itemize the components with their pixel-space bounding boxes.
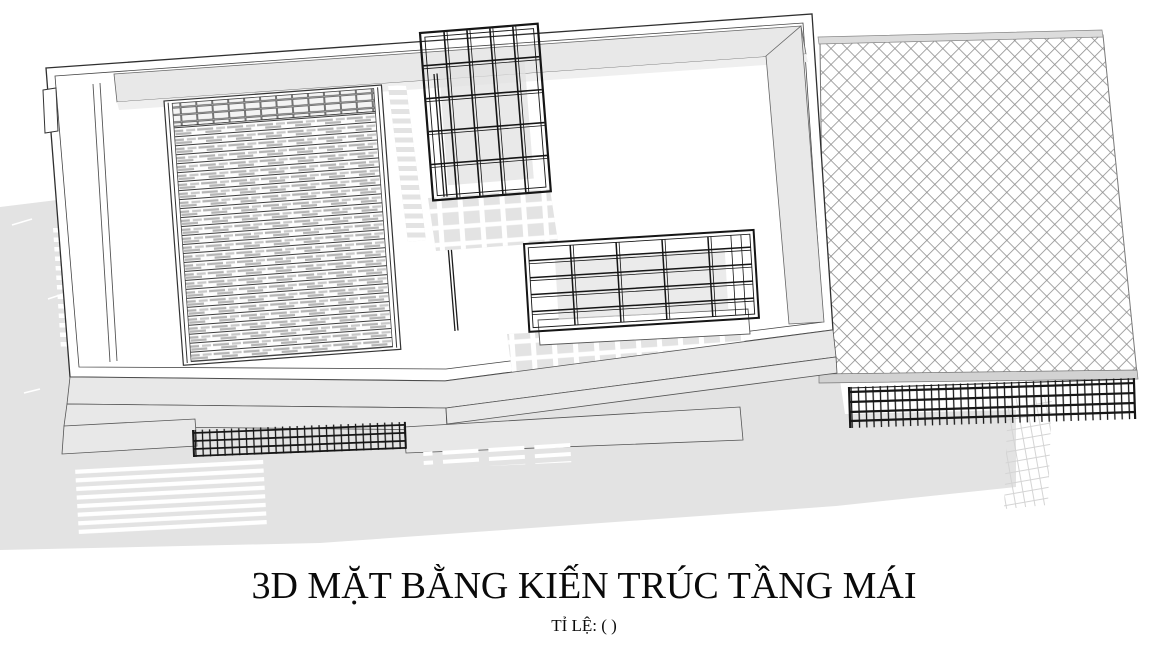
drawing-scale-label: TỈ LỆ: ( ) <box>0 616 1168 636</box>
caption-block: 3D MẶT BẰNG KIẾN TRÚC TẦNG MÁI TỈ LỆ: ( … <box>0 567 1168 636</box>
louver-shadow-stripes <box>75 459 267 536</box>
right-railing <box>849 378 1135 428</box>
parapet-notch <box>43 88 58 133</box>
louver-roof-panel <box>164 85 401 365</box>
drawing-sheet: 3D MẶT BẰNG KIẾN TRÚC TẦNG MÁI TỈ LỆ: ( … <box>0 0 1168 656</box>
roof-plan-drawing <box>0 0 1168 656</box>
drawing-title: 3D MẶT BẰNG KIẾN TRÚC TẦNG MÁI <box>0 567 1168 607</box>
tiled-roof <box>818 30 1138 383</box>
